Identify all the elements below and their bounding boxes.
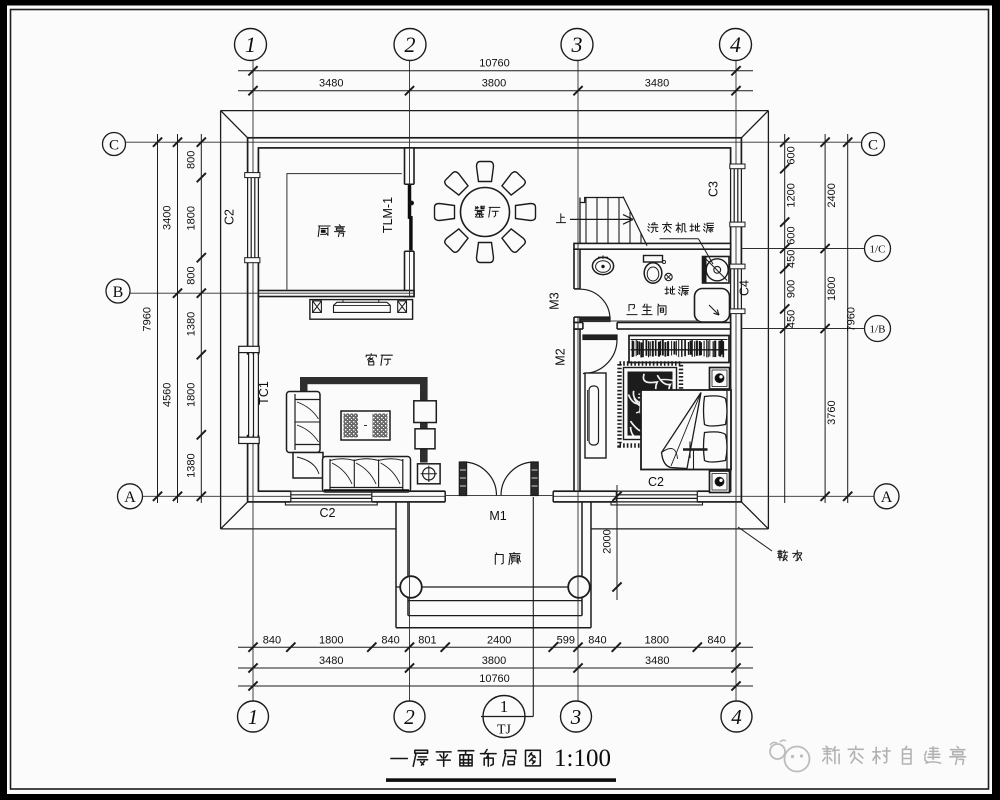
svg-text:1800: 1800 — [185, 206, 197, 230]
svg-text:840: 840 — [381, 635, 399, 647]
svg-text:1:100: 1:100 — [554, 745, 611, 772]
svg-text:1: 1 — [245, 32, 256, 57]
svg-text:600: 600 — [786, 226, 798, 244]
svg-text:3760: 3760 — [826, 400, 838, 424]
svg-text:1380: 1380 — [185, 453, 197, 477]
svg-text:B: B — [113, 284, 124, 301]
svg-text:450: 450 — [786, 310, 798, 328]
svg-text:4560: 4560 — [162, 383, 174, 407]
svg-text:840: 840 — [263, 635, 281, 647]
svg-text:1800: 1800 — [185, 383, 197, 407]
svg-text:TLM-1: TLM-1 — [381, 197, 395, 233]
svg-text:M1: M1 — [489, 509, 506, 523]
svg-text:TC1: TC1 — [257, 381, 271, 405]
svg-text:M2: M2 — [554, 348, 568, 365]
svg-text:3400: 3400 — [162, 205, 174, 229]
svg-text:600: 600 — [786, 146, 798, 164]
svg-text:C2: C2 — [320, 506, 336, 520]
svg-text:2400: 2400 — [487, 635, 511, 647]
svg-text:1800: 1800 — [645, 635, 669, 647]
svg-text:840: 840 — [588, 635, 606, 647]
svg-text:2: 2 — [405, 32, 416, 57]
svg-text:450: 450 — [786, 250, 798, 268]
svg-text:800: 800 — [185, 266, 197, 284]
svg-text:A: A — [881, 489, 893, 506]
svg-text:1: 1 — [248, 705, 259, 729]
svg-text:3800: 3800 — [482, 655, 506, 667]
svg-text:C2: C2 — [223, 209, 237, 225]
svg-text:TJ: TJ — [497, 723, 512, 738]
svg-text:1380: 1380 — [185, 312, 197, 336]
svg-text:900: 900 — [786, 280, 798, 298]
svg-text:1200: 1200 — [786, 183, 798, 207]
svg-text:A: A — [124, 489, 136, 506]
svg-text:M3: M3 — [548, 292, 562, 309]
svg-text:1/C: 1/C — [870, 244, 886, 256]
svg-text:4: 4 — [730, 32, 741, 57]
svg-text:7960: 7960 — [142, 307, 154, 331]
svg-text:801: 801 — [418, 635, 436, 647]
svg-text:2: 2 — [404, 705, 415, 729]
svg-text:7960: 7960 — [846, 307, 858, 331]
svg-text:2000: 2000 — [602, 529, 614, 553]
svg-text:3: 3 — [570, 705, 582, 729]
svg-text:3480: 3480 — [645, 78, 669, 90]
svg-text:C: C — [109, 137, 119, 153]
svg-text:1/B: 1/B — [870, 324, 886, 336]
svg-text:4: 4 — [731, 705, 742, 729]
svg-text:C2: C2 — [648, 475, 664, 489]
svg-text:840: 840 — [707, 635, 725, 647]
svg-text:2400: 2400 — [826, 183, 838, 207]
svg-text:3480: 3480 — [645, 655, 669, 667]
svg-text:C4: C4 — [738, 280, 752, 296]
svg-text:3480: 3480 — [319, 78, 343, 90]
svg-text:1: 1 — [500, 697, 509, 716]
svg-text:C3: C3 — [707, 181, 721, 197]
svg-text:1800: 1800 — [319, 635, 343, 647]
svg-text:800: 800 — [185, 151, 197, 169]
svg-text:C: C — [868, 137, 878, 153]
svg-text:10760: 10760 — [479, 673, 510, 685]
svg-text:10760: 10760 — [479, 58, 510, 70]
svg-text:3: 3 — [571, 32, 583, 57]
svg-text:599: 599 — [557, 635, 575, 647]
svg-text:1800: 1800 — [826, 276, 838, 300]
svg-text:3480: 3480 — [319, 655, 343, 667]
svg-text:3800: 3800 — [482, 78, 506, 90]
